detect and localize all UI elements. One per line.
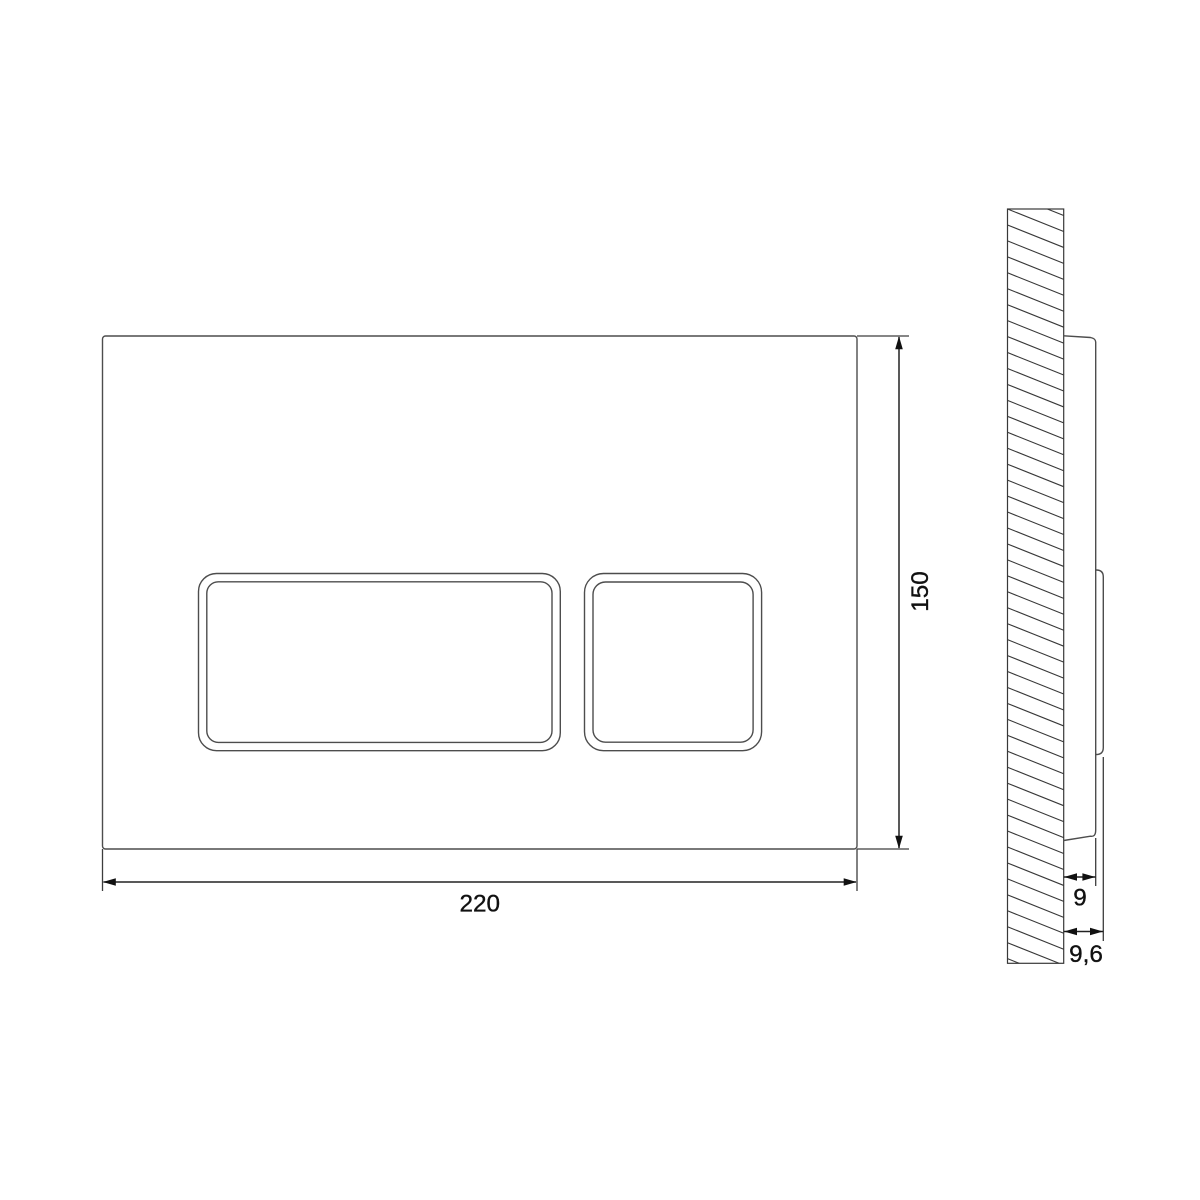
svg-text:9: 9 [1073,885,1087,912]
svg-text:150: 150 [907,571,934,612]
svg-text:9,6: 9,6 [1069,941,1103,968]
svg-text:220: 220 [460,891,501,918]
